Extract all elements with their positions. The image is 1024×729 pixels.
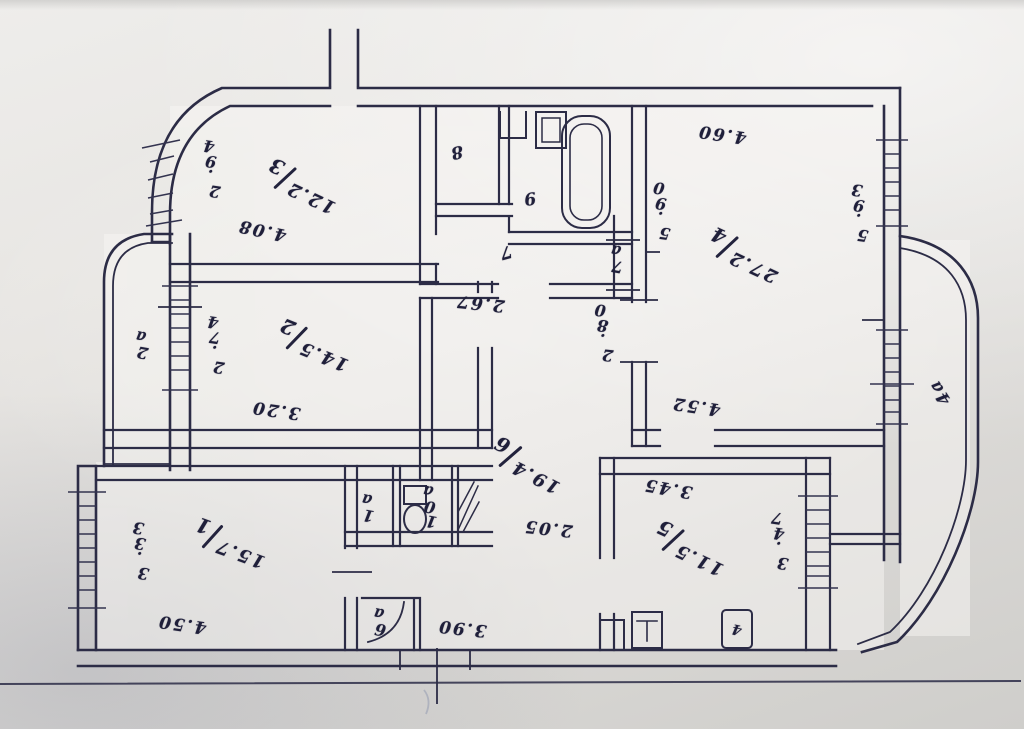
kitchen-dim-top: 3.45 xyxy=(642,474,694,502)
hall-dim-2-05: 2.05 xyxy=(522,515,573,540)
entry-dim-3-90: 3.90 xyxy=(436,615,487,640)
room-8-number: 8 xyxy=(447,141,465,163)
handwritten-labels-layer: 12.2349.24.08897a72.6708.227.244.6009.53… xyxy=(0,0,1024,729)
hall-dim-2-80: 08.2 xyxy=(589,302,618,363)
room-1-dim-left: 33.3 xyxy=(125,519,157,581)
room-4-dim-left: 09.5 xyxy=(646,179,677,241)
balcony-4a-label: 4a xyxy=(924,375,955,408)
room-1-dim-bottom: 4.50 xyxy=(156,611,208,638)
kitchen-dim-right: 74.3 xyxy=(764,509,795,571)
room-2-dim-bottom: 3.20 xyxy=(250,397,302,424)
room-9-number: 9 xyxy=(521,187,537,209)
room-2-number-area: 14.52 xyxy=(272,317,355,374)
room-4-dim-right: 39.5 xyxy=(844,181,875,243)
room-2-dim-left: 47.2 xyxy=(200,313,231,375)
wc-10a-label: a01 xyxy=(417,483,444,530)
stove-box-label: 4 xyxy=(731,620,744,638)
closet-6a-label: a6 xyxy=(370,605,390,637)
kitchen-5-number-area: 11.55 xyxy=(648,518,731,578)
room-4-number-area: 27.24 xyxy=(702,225,785,285)
closet-1a-label: a1 xyxy=(358,491,378,523)
closet-7a-label: a7 xyxy=(607,242,627,274)
corridor-7-number: 7 xyxy=(496,241,515,264)
photographed-floorplan-sheet: 12.2349.24.08897a72.6708.227.244.6009.53… xyxy=(0,0,1024,729)
room-3-number-area: 12.23 xyxy=(260,156,343,216)
passage-dim-4-52: 4.52 xyxy=(670,393,722,420)
balcony-2a-label: a2 xyxy=(132,328,152,360)
room-3-dim-left: 49.2 xyxy=(196,137,227,199)
room-4-dim-top: 4.60 xyxy=(696,121,748,148)
hall-dim-2-67: 2.67 xyxy=(454,290,505,315)
hall-6-number-area: 19.46 xyxy=(486,434,569,496)
room-3-dim-bottom: 4.08 xyxy=(236,215,288,245)
room-1-number-area: 15.71 xyxy=(188,516,271,571)
